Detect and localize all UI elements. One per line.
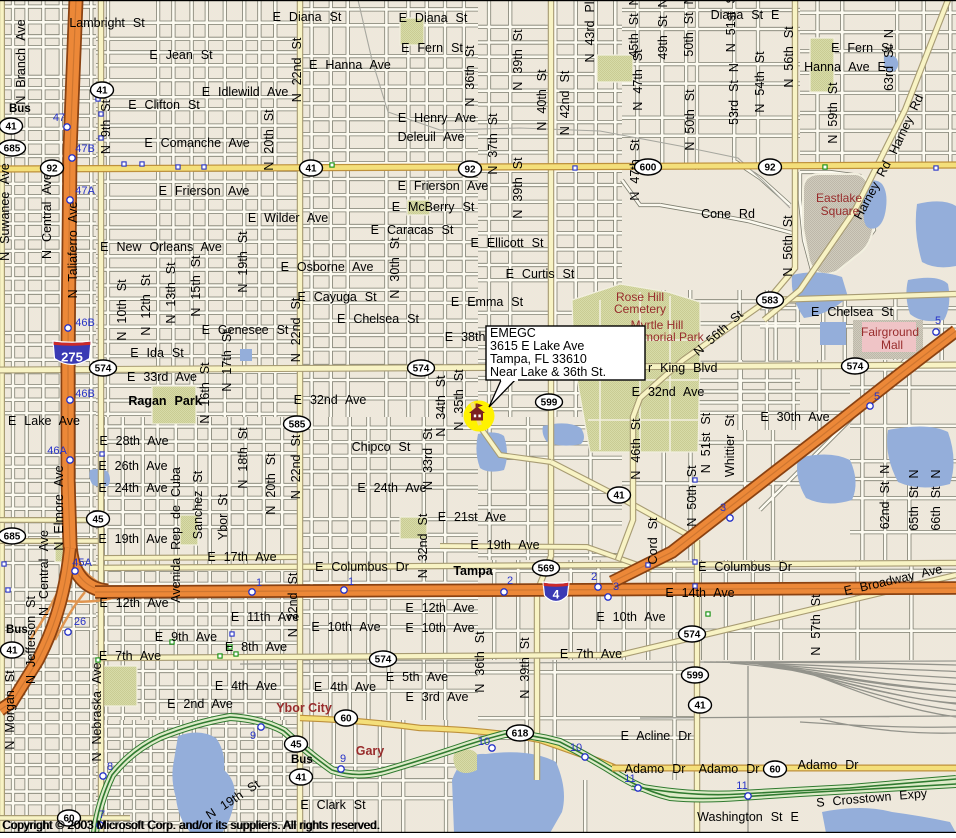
svg-text:E 19th Ave: E 19th Ave xyxy=(98,532,167,546)
svg-text:N 56th St: N 56th St xyxy=(782,26,796,88)
svg-text:E 24th Ave: E 24th Ave xyxy=(98,481,167,495)
svg-text:E 17th Ave: E 17th Ave xyxy=(207,550,276,564)
svg-text:N 37th St: N 37th St xyxy=(486,113,500,175)
svg-text:4: 4 xyxy=(553,588,560,602)
svg-text:E Caracas St: E Caracas St xyxy=(371,223,454,237)
svg-text:574: 574 xyxy=(375,655,392,666)
svg-text:583: 583 xyxy=(762,296,779,307)
svg-text:599: 599 xyxy=(541,398,558,409)
svg-text:45: 45 xyxy=(92,515,104,526)
svg-text:E 8th Ave: E 8th Ave xyxy=(225,640,287,654)
svg-text:E 19th Ave: E 19th Ave xyxy=(470,538,539,552)
svg-text:N 43rd Pl: N 43rd Pl xyxy=(583,1,597,62)
svg-text:E Ida St: E Ida St xyxy=(130,346,184,360)
svg-text:N 40th St: N 40th St xyxy=(535,69,549,131)
svg-text:N 39th St: N 39th St xyxy=(511,29,525,91)
svg-text:685: 685 xyxy=(4,532,21,543)
svg-text:Cone Rd: Cone Rd xyxy=(701,207,755,221)
svg-text:574: 574 xyxy=(413,364,430,375)
svg-text:N Suwanee Ave: N Suwanee Ave xyxy=(0,163,12,261)
svg-text:E Jean St: E Jean St xyxy=(149,48,213,62)
svg-text:N 56th St: N 56th St xyxy=(781,215,795,277)
svg-text:47: 47 xyxy=(53,112,65,124)
svg-text:N 22nd St: N 22nd St xyxy=(286,572,300,637)
svg-text:N 16th St: N 16th St xyxy=(198,362,212,424)
svg-text:Hanna Ave E: Hanna Ave E xyxy=(804,60,886,74)
svg-text:E Henry Ave: E Henry Ave xyxy=(398,111,476,125)
svg-text:Cemetery: Cemetery xyxy=(614,302,666,316)
svg-text:E 4th Ave: E 4th Ave xyxy=(314,680,376,694)
svg-text:600: 600 xyxy=(640,163,657,174)
svg-text:10: 10 xyxy=(478,736,490,748)
svg-text:Whittier St: Whittier St xyxy=(723,414,737,477)
svg-text:N 42nd St: N 42nd St xyxy=(558,70,572,135)
svg-text:N 20th St: N 20th St xyxy=(262,109,276,171)
svg-text:N 51st St: N 51st St xyxy=(724,0,738,52)
svg-text:E Chelsea St: E Chelsea St xyxy=(811,305,893,319)
svg-text:E Genesee St: E Genesee St xyxy=(202,323,289,337)
svg-text:65th St N: 65th St N xyxy=(907,469,921,530)
svg-text:N Elmore Ave: N Elmore Ave xyxy=(52,465,66,550)
svg-text:N 15th St: N 15th St xyxy=(189,255,203,317)
svg-text:5: 5 xyxy=(935,315,941,327)
svg-text:8: 8 xyxy=(107,761,113,773)
svg-text:46B: 46B xyxy=(75,317,95,329)
svg-text:E Hanna Ave: E Hanna Ave xyxy=(309,58,391,72)
svg-text:E 5th Ave: E 5th Ave xyxy=(386,670,448,684)
svg-text:9: 9 xyxy=(250,730,256,742)
svg-text:E Lake Ave: E Lake Ave xyxy=(8,414,80,428)
svg-text:45A: 45A xyxy=(72,557,92,569)
svg-text:Washington St E: Washington St E xyxy=(697,810,799,824)
svg-text:N 22nd St: N 22nd St xyxy=(290,37,304,102)
svg-text:N 46th St: N 46th St xyxy=(629,418,643,480)
svg-text:N 33rd St: N 33rd St xyxy=(421,428,435,490)
svg-text:10: 10 xyxy=(570,742,582,754)
svg-text:N Jefferson St: N Jefferson St xyxy=(24,595,38,684)
svg-text:E Frierson Ave: E Frierson Ave xyxy=(398,179,489,193)
svg-text:11: 11 xyxy=(624,773,635,785)
svg-text:63rd St N: 63rd St N xyxy=(882,29,896,91)
svg-text:N 22nd St: N 22nd St xyxy=(289,297,303,362)
svg-text:49th St N: 49th St N xyxy=(656,0,670,60)
svg-text:N 57th St: N 57th St xyxy=(809,594,823,656)
svg-text:E 10th Ave: E 10th Ave xyxy=(596,610,665,624)
svg-text:92: 92 xyxy=(464,165,476,176)
svg-text:E 14th Ave: E 14th Ave xyxy=(665,586,734,600)
svg-text:E Columbus Dr: E Columbus Dr xyxy=(315,560,409,574)
svg-text:E Curtis St: E Curtis St xyxy=(506,267,575,281)
svg-text:E Diana St: E Diana St xyxy=(399,11,468,25)
svg-text:50th St N: 50th St N xyxy=(682,0,696,57)
svg-text:3: 3 xyxy=(613,581,619,593)
svg-text:46A: 46A xyxy=(47,445,67,457)
svg-text:1: 1 xyxy=(256,577,262,589)
svg-text:Bus: Bus xyxy=(9,103,31,115)
svg-text:569: 569 xyxy=(538,564,555,575)
svg-text:9: 9 xyxy=(340,753,346,765)
svg-text:46B: 46B xyxy=(75,388,95,400)
svg-text:618: 618 xyxy=(512,729,529,740)
svg-text:N 50th St: N 50th St xyxy=(683,89,697,151)
svg-text:E 32nd Ave: E 32nd Ave xyxy=(294,393,367,407)
svg-text:N 59th St: N 59th St xyxy=(826,82,840,144)
svg-text:Deleuil Ave: Deleuil Ave xyxy=(398,130,465,144)
svg-text:r King Blvd: r King Blvd xyxy=(648,361,717,375)
svg-text:Eastlake: Eastlake xyxy=(816,191,862,205)
svg-text:E 7th Ave: E 7th Ave xyxy=(560,647,622,661)
svg-text:E Cayuga St: E Cayuga St xyxy=(297,290,377,304)
svg-text:N Morgan St: N Morgan St xyxy=(3,670,17,750)
svg-text:Tampa: Tampa xyxy=(453,564,493,578)
svg-text:Tampa, FL 33610: Tampa, FL 33610 xyxy=(490,352,587,366)
svg-text:47B: 47B xyxy=(75,143,95,155)
svg-text:574: 574 xyxy=(847,362,864,373)
svg-text:5: 5 xyxy=(874,391,880,403)
svg-text:41: 41 xyxy=(295,773,307,784)
svg-text:47A: 47A xyxy=(75,185,95,197)
svg-text:Diana St E: Diana St E xyxy=(711,8,780,22)
svg-text:92: 92 xyxy=(764,163,776,174)
svg-text:E Columbus Dr: E Columbus Dr xyxy=(698,560,792,574)
svg-text:E 24th Ave: E 24th Ave xyxy=(357,481,426,495)
svg-text:685: 685 xyxy=(4,144,21,155)
svg-text:E Diana St: E Diana St xyxy=(273,10,342,24)
svg-text:41: 41 xyxy=(694,701,706,712)
svg-text:41: 41 xyxy=(613,491,625,502)
svg-text:N Central Ave: N Central Ave xyxy=(40,173,54,259)
svg-text:E 4th Ave: E 4th Ave xyxy=(215,679,277,693)
svg-text:N 18th St: N 18th St xyxy=(236,427,250,489)
svg-text:E McBerry St: E McBerry St xyxy=(392,200,475,214)
svg-text:Ybor St: Ybor St xyxy=(216,493,230,540)
svg-text:N Branch Ave: N Branch Ave xyxy=(14,19,28,104)
svg-text:E 28th Ave: E 28th Ave xyxy=(99,434,168,448)
svg-text:E 7th Ave: E 7th Ave xyxy=(99,649,161,663)
svg-text:60: 60 xyxy=(340,714,352,725)
svg-text:66th St N: 66th St N xyxy=(929,469,943,530)
svg-text:Ybor City: Ybor City xyxy=(276,701,332,715)
svg-text:E Clark St: E Clark St xyxy=(300,798,366,812)
svg-text:N 13th St: N 13th St xyxy=(164,262,178,324)
svg-text:45: 45 xyxy=(290,740,302,751)
svg-text:N 22nd St: N 22nd St xyxy=(289,434,303,499)
svg-text:N 12th St: N 12th St xyxy=(139,274,153,336)
svg-text:11: 11 xyxy=(736,780,747,792)
svg-text:275: 275 xyxy=(61,350,83,365)
svg-text:E Comanche Ave: E Comanche Ave xyxy=(144,136,249,150)
svg-text:41: 41 xyxy=(305,164,317,175)
svg-text:Cord St: Cord St xyxy=(646,517,660,564)
svg-text:E Acline Dr: E Acline Dr xyxy=(621,729,692,743)
svg-text:Copyright © 2003 Microsoft Cor: Copyright © 2003 Microsoft Corp. and/or … xyxy=(3,819,381,832)
svg-text:N 19th St: N 19th St xyxy=(236,231,250,293)
svg-text:N 36th St: N 36th St xyxy=(473,631,487,693)
svg-text:N 9th St: N 9th St xyxy=(99,99,113,154)
svg-text:N 32nd St: N 32nd St xyxy=(416,513,430,578)
svg-text:3: 3 xyxy=(720,502,726,514)
svg-text:41: 41 xyxy=(5,122,17,133)
svg-text:62nd St N: 62nd St N xyxy=(878,465,892,530)
svg-text:Square: Square xyxy=(821,204,860,218)
svg-text:45th St N: 45th St N xyxy=(627,0,641,58)
svg-text:E New Orleans Ave: E New Orleans Ave xyxy=(100,240,222,254)
svg-text:599: 599 xyxy=(687,671,704,682)
svg-text:N Central Ave: N Central Ave xyxy=(37,530,51,616)
svg-text:N 30th St: N 30th St xyxy=(388,237,402,299)
svg-text:Bus: Bus xyxy=(6,624,28,636)
svg-text:Sanchez St: Sanchez St xyxy=(191,470,205,539)
svg-text:E 32nd Ave: E 32nd Ave xyxy=(632,385,705,399)
svg-text:E 12th Ave: E 12th Ave xyxy=(405,601,474,615)
svg-text:26: 26 xyxy=(74,616,86,628)
svg-text:Bus: Bus xyxy=(291,754,313,766)
svg-text:E 2nd Ave: E 2nd Ave xyxy=(167,697,233,711)
svg-text:574: 574 xyxy=(684,630,701,641)
svg-text:E 10th Ave: E 10th Ave xyxy=(311,620,380,634)
svg-text:N Taliaferro Ave: N Taliaferro Ave xyxy=(66,202,80,299)
svg-text:60: 60 xyxy=(769,765,781,776)
svg-text:N 39th St: N 39th St xyxy=(518,637,532,699)
svg-text:E 30th Ave: E 30th Ave xyxy=(760,410,829,424)
svg-text:1: 1 xyxy=(348,576,354,588)
svg-text:92: 92 xyxy=(46,164,58,175)
svg-text:E 12th Ave: E 12th Ave xyxy=(99,596,168,610)
svg-text:E 9th Ave: E 9th Ave xyxy=(155,630,217,644)
svg-text:N 36th St: N 36th St xyxy=(463,45,477,107)
svg-text:574: 574 xyxy=(95,364,112,375)
svg-text:E Chelsea St: E Chelsea St xyxy=(337,312,419,326)
svg-text:E Frierson Ave: E Frierson Ave xyxy=(159,184,250,198)
svg-text:N 34th St: N 34th St xyxy=(434,375,448,437)
svg-text:E Wilder Ave: E Wilder Ave xyxy=(248,211,328,225)
svg-text:E Osborne Ave: E Osborne Ave xyxy=(281,260,374,274)
svg-text:N 50th St: N 50th St xyxy=(685,465,699,527)
svg-text:585: 585 xyxy=(289,420,306,431)
svg-text:Adamo Dr: Adamo Dr xyxy=(798,758,859,772)
svg-text:N 39th St: N 39th St xyxy=(511,157,525,219)
svg-text:2: 2 xyxy=(507,575,513,587)
svg-text:Avenida Rep de Cuba: Avenida Rep de Cuba xyxy=(169,467,183,603)
svg-text:N 51st St: N 51st St xyxy=(699,412,713,473)
svg-text:Chipco St: Chipco St xyxy=(352,440,411,454)
svg-text:E 21st Ave: E 21st Ave xyxy=(438,510,507,524)
svg-text:E Fern St: E Fern St xyxy=(401,41,463,55)
svg-text:N 54th St: N 54th St xyxy=(753,51,767,113)
svg-text:53rd St N: 53rd St N xyxy=(727,63,741,125)
svg-text:3615 E Lake Ave: 3615 E Lake Ave xyxy=(490,339,584,353)
svg-text:Fairground: Fairground xyxy=(861,325,919,339)
svg-text:Near Lake & 36th St.: Near Lake & 36th St. xyxy=(490,365,606,379)
svg-text:41: 41 xyxy=(96,86,108,97)
svg-text:EMEGC: EMEGC xyxy=(490,326,536,340)
svg-text:Gary: Gary xyxy=(356,744,385,758)
svg-text:2: 2 xyxy=(591,571,597,583)
svg-text:Mall: Mall xyxy=(881,338,903,352)
svg-text:E 26th Ave: E 26th Ave xyxy=(98,459,167,473)
svg-text:N 47th St: N 47th St xyxy=(631,49,645,111)
svg-text:N 17th St: N 17th St xyxy=(220,330,234,392)
svg-text:Ragan Park: Ragan Park xyxy=(128,394,201,408)
svg-text:N 35th St: N 35th St xyxy=(452,369,466,431)
svg-text:41: 41 xyxy=(6,646,18,657)
svg-text:N 10th St: N 10th St xyxy=(115,279,129,341)
svg-text:E 33rd Ave: E 33rd Ave xyxy=(127,370,197,384)
svg-text:E 3rd Ave: E 3rd Ave xyxy=(406,690,469,704)
svg-text:E Clifton St: E Clifton St xyxy=(128,98,200,112)
svg-text:E Emma St: E Emma St xyxy=(451,295,524,309)
svg-text:N Nebraska Ave: N Nebraska Ave xyxy=(90,662,104,761)
svg-text:E Ellicott St: E Ellicott St xyxy=(471,236,544,250)
svg-text:E 10th Ave: E 10th Ave xyxy=(405,621,474,635)
svg-text:N 20th St: N 20th St xyxy=(264,453,278,515)
svg-text:Adamo Dr: Adamo Dr xyxy=(699,762,760,776)
svg-text:Lambright St: Lambright St xyxy=(69,16,145,30)
svg-text:E Idlewild Ave: E Idlewild Ave xyxy=(202,85,289,99)
